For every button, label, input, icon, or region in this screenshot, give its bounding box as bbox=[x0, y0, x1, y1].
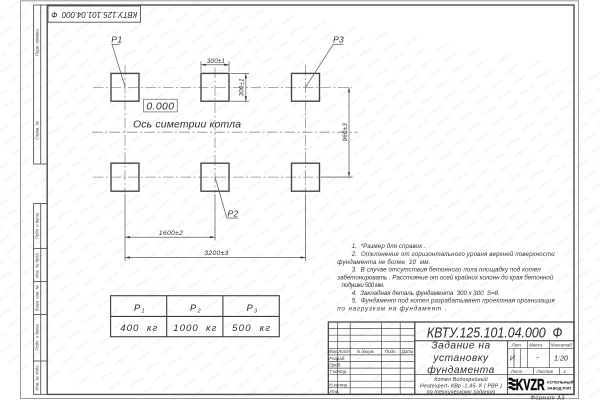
svg-text:установку: установку bbox=[432, 353, 489, 364]
svg-text:забетонировать . Расстояние от: забетонировать . Расстояние от осей край… bbox=[336, 274, 554, 281]
svg-text:Р: Р bbox=[134, 302, 141, 313]
svg-text:Формат А3: Формат А3 bbox=[531, 395, 566, 400]
svg-text:Разраб.: Разраб. bbox=[329, 356, 345, 361]
svg-text:Взам. инв. №: Взам. инв. № bbox=[35, 285, 40, 311]
svg-text:300±1: 300±1 bbox=[239, 78, 246, 96]
svg-text:фундамента не более 10 мм.: фундамента не более 10 мм. bbox=[337, 259, 430, 266]
svg-text:Инв. № подл.: Инв. № подл. bbox=[35, 365, 40, 391]
svg-text:Задание на: Задание на bbox=[431, 341, 490, 352]
svg-text:1:20: 1:20 bbox=[554, 354, 568, 363]
svg-text:Р2: Р2 bbox=[228, 209, 239, 219]
svg-text:300±1: 300±1 bbox=[207, 58, 225, 65]
svg-text:ЗАВОД РЭП: ЗАВОД РЭП bbox=[547, 386, 571, 391]
svg-text:Дата: Дата bbox=[401, 349, 414, 354]
svg-text:1: 1 bbox=[142, 309, 145, 315]
svg-text:Лит.: Лит. bbox=[511, 343, 523, 348]
svg-text:Н.контр.: Н.контр. bbox=[329, 382, 348, 387]
svg-text:1000 кг: 1000 кг bbox=[173, 323, 216, 334]
svg-text:4. Закладная деталь фундамент: 4. Закладная деталь фундамента 300 х 300… bbox=[352, 290, 500, 297]
svg-text:КВТУ.125.101.04.000 Ф: КВТУ.125.101.04.000 Ф bbox=[427, 325, 563, 341]
svg-text:Утв.: Утв. bbox=[329, 389, 339, 394]
svg-text:Подп.: Подп. bbox=[385, 349, 397, 354]
svg-text:Ось симетрии котла: Ось симетрии котла bbox=[133, 119, 241, 130]
svg-text:КВТУ.125.101.04.000 Ф: КВТУ.125.101.04.000 Ф bbox=[51, 10, 137, 20]
svg-text:И: И bbox=[510, 354, 516, 363]
svg-text:Р: Р bbox=[247, 302, 254, 313]
svg-text:Изм.: Изм. bbox=[328, 349, 338, 354]
svg-text:Масса: Масса bbox=[529, 343, 543, 348]
svg-text:подушки 500 мм.: подушки 500 мм. bbox=[342, 282, 385, 289]
svg-text:по техническому заданию: по техническому заданию bbox=[427, 390, 496, 396]
svg-text:Масштаб: Масштаб bbox=[551, 343, 572, 348]
svg-text:Лист: Лист bbox=[510, 369, 523, 374]
svg-text:Котел Водогрейный: Котел Водогрейный bbox=[434, 376, 488, 383]
svg-text:960±3: 960±3 bbox=[342, 123, 349, 142]
svg-text:Листов: Листов bbox=[536, 369, 554, 374]
svg-text:Р1: Р1 bbox=[111, 35, 122, 45]
svg-text:5. Фундамент под котел разраб: 5. Фундамент под котел разрабатывает про… bbox=[352, 298, 556, 305]
svg-text:3200±3: 3200±3 bbox=[204, 250, 228, 257]
svg-text:Перв. примен.: Перв. примен. bbox=[35, 28, 40, 56]
svg-text:Р: Р bbox=[190, 302, 197, 313]
svg-text:3. В случае отсутствия бетонн: 3. В случае отсутствия бетонного пола пл… bbox=[352, 267, 542, 274]
svg-text:КОТЕЛЬНЫЙ: КОТЕЛЬНЫЙ bbox=[547, 380, 573, 385]
svg-text:Р3: Р3 bbox=[333, 35, 344, 45]
svg-text:400 кг: 400 кг bbox=[120, 323, 157, 334]
svg-text:по нагрузкам на фундамент .: по нагрузкам на фундамент . bbox=[337, 305, 446, 312]
svg-text:Лист: Лист bbox=[337, 349, 350, 354]
svg-text:500 кг: 500 кг bbox=[232, 323, 270, 334]
svg-text:0.000: 0.000 bbox=[146, 102, 174, 113]
svg-text:N докум.: N докум. bbox=[357, 349, 375, 354]
svg-text:1600±2: 1600±2 bbox=[159, 230, 183, 237]
svg-text:Heatexpert- КВр -1,45- К ( РВР: Heatexpert- КВр -1,45- К ( РВР ) bbox=[420, 383, 502, 389]
svg-text:Подп. и дата: Подп. и дата bbox=[35, 324, 40, 351]
svg-text:Инв. № дубл.: Инв. № дубл. bbox=[35, 252, 40, 278]
svg-text:2. Отклонение от горизонтальн: 2. Отклонение от горизонтального уровня … bbox=[351, 251, 556, 258]
svg-text:Подп. и дата: Подп. и дата bbox=[35, 212, 40, 239]
svg-text:Т.контр.: Т.контр. bbox=[329, 369, 347, 374]
svg-text:KVZR: KVZR bbox=[516, 377, 545, 394]
svg-text:1. *Размер для справок .: 1. *Размер для справок . bbox=[352, 243, 426, 250]
svg-text:Проб.: Проб. bbox=[329, 363, 341, 368]
svg-text:Справ. №: Справ. № bbox=[35, 121, 40, 140]
